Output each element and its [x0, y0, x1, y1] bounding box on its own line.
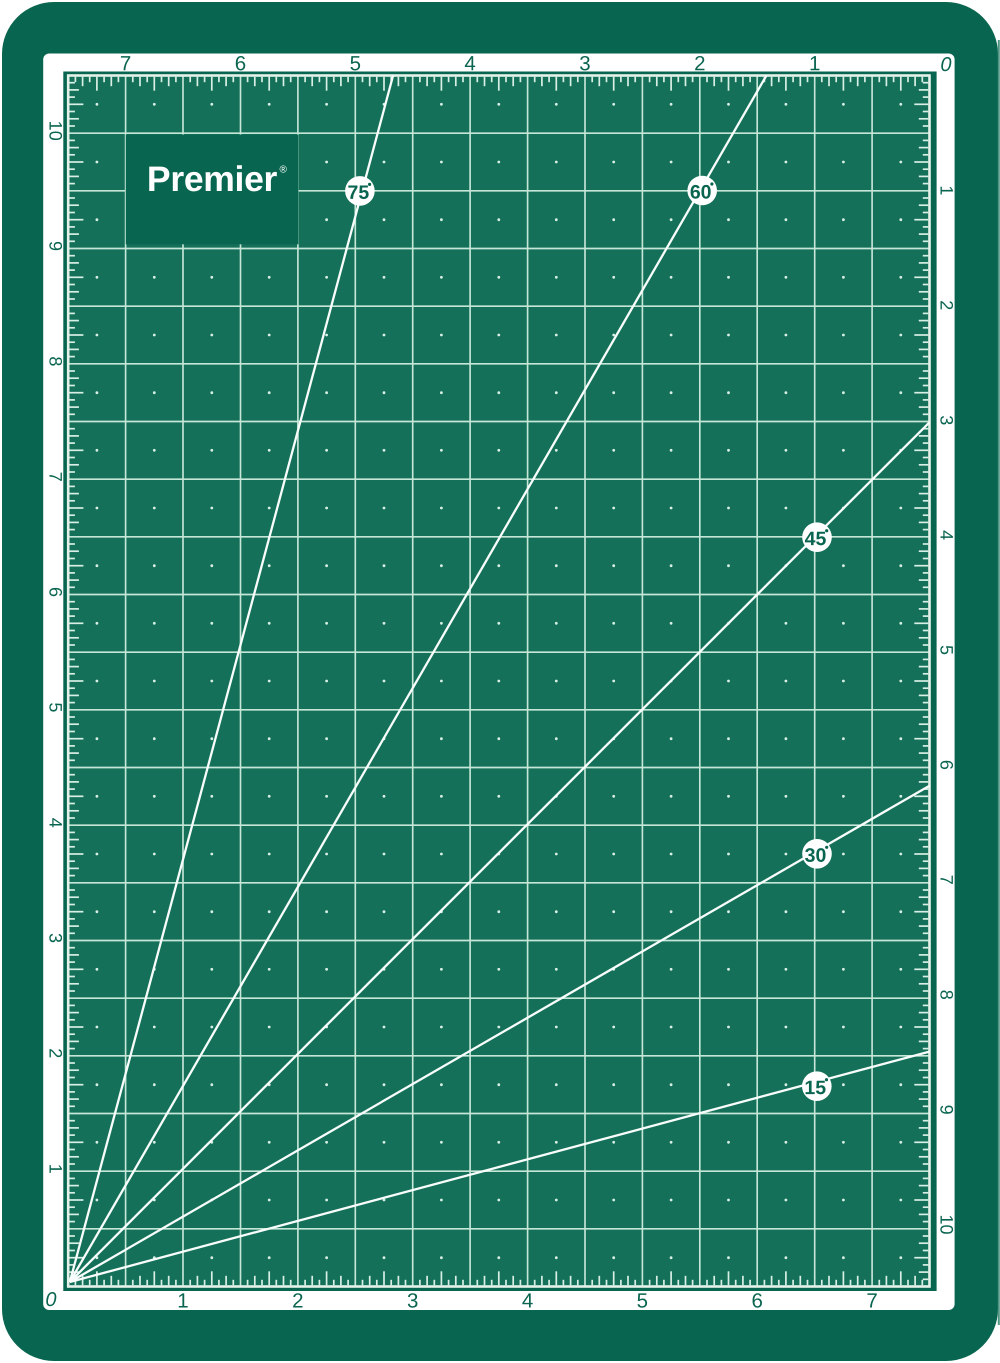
svg-text:30: 30 [805, 845, 827, 867]
svg-text:7: 7 [120, 52, 131, 75]
svg-text:7: 7 [936, 875, 956, 885]
svg-text:2: 2 [936, 300, 956, 310]
svg-text:75: 75 [348, 182, 370, 204]
svg-text:1: 1 [177, 1289, 188, 1312]
svg-text:10: 10 [936, 1214, 956, 1234]
svg-text:4: 4 [522, 1289, 533, 1312]
svg-text:1: 1 [809, 52, 820, 75]
svg-text:15: 15 [804, 1077, 826, 1099]
svg-text:6: 6 [936, 760, 956, 770]
svg-text:8: 8 [45, 356, 65, 366]
svg-text:3: 3 [407, 1289, 418, 1312]
svg-text:2: 2 [292, 1289, 303, 1312]
svg-text:45: 45 [805, 528, 827, 550]
svg-text:5: 5 [45, 702, 65, 712]
svg-text:8: 8 [936, 990, 956, 1000]
svg-text:0: 0 [45, 1289, 56, 1311]
svg-text:4: 4 [464, 52, 475, 75]
svg-text:9: 9 [936, 1105, 956, 1115]
svg-text:5: 5 [350, 52, 361, 75]
svg-text:4: 4 [45, 818, 65, 828]
svg-text:7: 7 [866, 1289, 877, 1312]
svg-text:4: 4 [936, 530, 956, 540]
svg-text:7: 7 [45, 472, 65, 482]
svg-text:2: 2 [694, 52, 705, 75]
svg-text:10: 10 [45, 121, 65, 141]
svg-text:9: 9 [45, 241, 65, 251]
svg-text:®: ® [279, 164, 287, 175]
svg-text:2: 2 [45, 1048, 65, 1058]
svg-text:5: 5 [637, 1289, 648, 1312]
svg-text:5: 5 [936, 645, 956, 655]
svg-text:1: 1 [45, 1164, 65, 1174]
svg-text:3: 3 [45, 933, 65, 943]
svg-text:6: 6 [751, 1289, 762, 1312]
svg-text:6: 6 [235, 52, 246, 75]
svg-text:0: 0 [940, 54, 951, 76]
svg-text:Premier: Premier [147, 159, 278, 199]
svg-text:60: 60 [690, 181, 712, 203]
svg-text:6: 6 [45, 587, 65, 597]
svg-text:3: 3 [936, 415, 956, 425]
svg-text:1: 1 [936, 185, 956, 195]
svg-text:3: 3 [579, 52, 590, 75]
